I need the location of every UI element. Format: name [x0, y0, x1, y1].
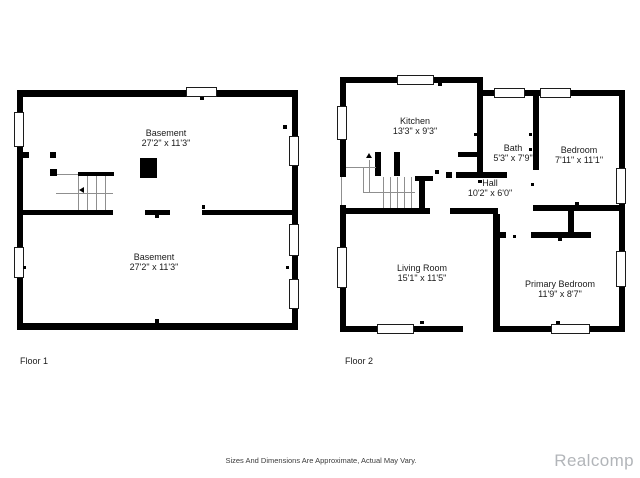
- floor-label: Floor 1: [20, 356, 48, 366]
- stair-rail-line: [363, 167, 364, 192]
- tick-mark: [438, 83, 442, 86]
- window: [377, 324, 414, 334]
- tick-mark: [23, 266, 26, 269]
- window: [14, 247, 24, 278]
- window: [494, 88, 525, 98]
- window: [616, 251, 626, 287]
- window: [551, 324, 590, 334]
- interior-wall: [477, 77, 483, 178]
- stair-rail-line: [57, 174, 78, 175]
- window: [337, 247, 347, 288]
- window: [14, 112, 24, 147]
- tick-mark: [575, 202, 579, 205]
- room-label: Primary Bedroom 11'9" x 8'7": [525, 280, 595, 299]
- tick-mark: [200, 97, 204, 100]
- tick-mark: [556, 321, 560, 324]
- stair-direction-arrow-icon: [366, 153, 372, 158]
- window: [540, 88, 571, 98]
- window: [289, 224, 299, 256]
- room-dims: 10'2" x 6'0": [468, 189, 512, 199]
- stairwell-opening-line: [341, 177, 342, 205]
- tick-mark: [529, 133, 532, 136]
- disclaimer-text: Sizes And Dimensions Are Approximate, Ac…: [225, 456, 416, 465]
- interior-wall: [533, 205, 625, 211]
- exterior-wall: [17, 90, 298, 97]
- floorplan-canvas: Basement 27'2" x 11'3" Basement 27'2" x …: [0, 0, 640, 478]
- stair-direction-arrow-icon: [79, 187, 84, 193]
- tick-mark: [435, 170, 439, 174]
- exterior-wall: [17, 323, 298, 330]
- room-dims: 7'11" x 11'1": [555, 156, 603, 166]
- room-label: Living Room 15'1" x 11'5": [397, 264, 447, 283]
- room-dims: 15'1" x 11'5": [397, 274, 447, 284]
- exterior-wall: [619, 90, 625, 332]
- stair-rail-line: [363, 192, 415, 193]
- closet-wall: [375, 152, 381, 176]
- stair-arrow-stem: [369, 160, 370, 192]
- interior-wall: [493, 214, 500, 332]
- room-dims: 13'3" x 9'3": [393, 127, 437, 137]
- tick-mark: [531, 183, 534, 186]
- closet-wall: [394, 152, 400, 176]
- interior-wall: [458, 152, 477, 157]
- interior-wall: [446, 172, 452, 178]
- stair-rail-line: [56, 193, 113, 194]
- window: [289, 279, 299, 309]
- room-label: Bedroom 7'11" x 11'1": [555, 146, 603, 165]
- room-dims: 5'3" x 7'9": [493, 154, 532, 164]
- window: [616, 168, 626, 204]
- tick-mark: [283, 125, 287, 129]
- post: [50, 169, 57, 176]
- room-label: Basement 27'2" x 11'3": [130, 253, 179, 272]
- window: [337, 106, 347, 140]
- realcomp-watermark: Realcomp: [554, 451, 634, 471]
- room-dims: 27'2" x 11'3": [142, 139, 191, 149]
- interior-wall: [17, 210, 113, 215]
- stair-wall: [419, 181, 425, 208]
- interior-wall: [533, 96, 539, 170]
- tick-mark: [155, 215, 159, 218]
- tick-mark: [502, 235, 506, 238]
- interior-wall: [346, 208, 430, 214]
- room-label: Basement 27'2" x 11'3": [142, 129, 191, 148]
- interior-wall: [450, 208, 498, 214]
- post: [50, 152, 56, 158]
- tick-mark: [286, 266, 289, 269]
- room-label: Hall 10'2" x 6'0": [468, 179, 512, 198]
- window: [289, 136, 299, 166]
- tick-mark: [513, 235, 516, 238]
- post: [23, 152, 29, 158]
- interior-wall: [202, 210, 292, 215]
- floor-label: Floor 2: [345, 356, 373, 366]
- room-label: Bath 5'3" x 7'9": [493, 144, 532, 163]
- room-dims: 27'2" x 11'3": [130, 263, 179, 273]
- room-label: Kitchen 13'3" x 9'3": [393, 117, 437, 136]
- stair-rail-line: [346, 167, 376, 168]
- tick-mark: [155, 319, 159, 323]
- window: [397, 75, 434, 85]
- chimney: [140, 158, 157, 178]
- tick-mark: [420, 321, 424, 324]
- window: [186, 87, 217, 97]
- tick-mark: [474, 133, 477, 136]
- room-dims: 11'9" x 8'7": [525, 290, 595, 300]
- tick-mark: [558, 238, 562, 241]
- tick-mark: [202, 205, 205, 209]
